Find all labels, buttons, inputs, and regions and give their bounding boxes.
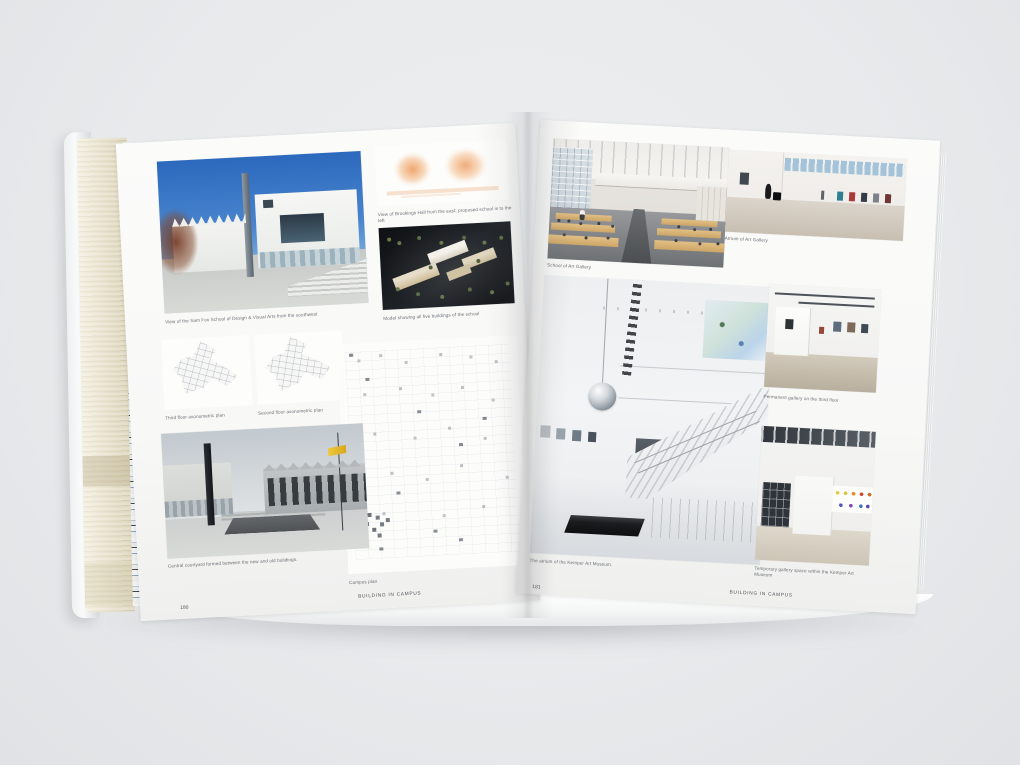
- plan-line-drawing: [260, 333, 335, 399]
- photo-permanent-gallery: [764, 284, 881, 393]
- campus-plan-specks: [349, 354, 353, 357]
- caption-campus-plan: Campus plan: [349, 575, 439, 586]
- right-running-footer: BUILDING IN CAMPUS: [686, 588, 836, 601]
- photo-sam-fox-school: [157, 151, 369, 313]
- photo-school-of-art-interior: [547, 139, 729, 268]
- left-page: View of the Sam Fox School of Design & V…: [116, 123, 540, 621]
- left-running-footer: BUILDING IN CAMPUS: [300, 588, 480, 602]
- photo-central-courtyard: [161, 423, 369, 558]
- book-product-photo: View of the Sam Fox School of Design & V…: [0, 0, 1020, 765]
- ceiling-light-track: [622, 276, 643, 376]
- right-page: School of Art Gallery Atrium of Art Gall…: [516, 120, 940, 614]
- model-building-shape: [392, 262, 440, 291]
- caption-temporary: Temporary gallery space within the Kempe…: [754, 566, 872, 584]
- photo-brookings-sketch: [374, 139, 509, 206]
- mirror-ball-shape: [588, 382, 617, 411]
- left-page-number: 180: [180, 605, 189, 611]
- dark-paving-shape: [224, 514, 321, 535]
- dark-slab-shape: [204, 443, 215, 525]
- dark-aisle-shape: [621, 208, 654, 263]
- seated-figure-shape: [579, 210, 585, 220]
- photo-temporary-gallery: [755, 426, 876, 566]
- black-bench-shape: [564, 515, 645, 537]
- photo-gallery-with-visitor: [725, 150, 907, 241]
- sawtooth-roof-shape: [172, 211, 247, 227]
- sawtooth-roofline-shape: [263, 457, 365, 471]
- suitcase-shape: [773, 192, 781, 200]
- photo-campus-model: [379, 221, 515, 310]
- visitor-figure-shape: [765, 184, 772, 199]
- caption-model: Model showing all five buildings of the …: [383, 309, 517, 322]
- drawing-third-floor-plan: [161, 335, 253, 410]
- photo-kemper-atrium: [530, 275, 774, 565]
- model-trees-dots: [387, 238, 391, 242]
- plan-line-drawing: [165, 335, 244, 406]
- caption-permanent: Permanent gallery on the third floor: [763, 394, 873, 406]
- stairs-shape: [286, 259, 368, 297]
- drawing-second-floor-plan: [254, 330, 346, 405]
- chair-dots: [557, 219, 560, 222]
- right-page-number: 181: [532, 584, 541, 590]
- model-building-shape: [446, 264, 472, 281]
- staircase-shape: [625, 372, 769, 505]
- yellow-flag-shape: [328, 445, 346, 456]
- caption-plan-third: Third floor axonometric plan: [165, 411, 260, 422]
